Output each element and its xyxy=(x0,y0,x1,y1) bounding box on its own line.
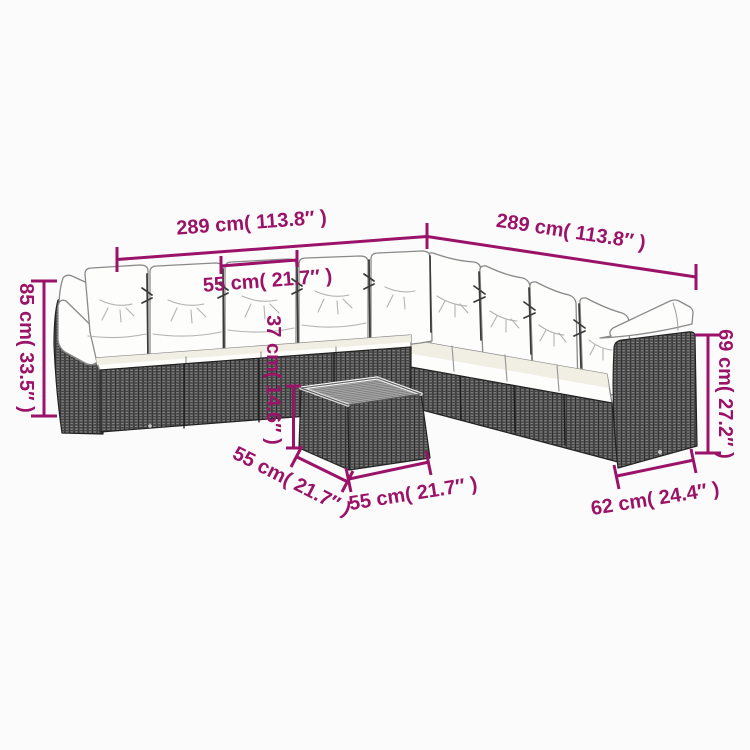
svg-text:69 cm( 27.2″ ): 69 cm( 27.2″ ) xyxy=(714,329,736,459)
svg-text:37 cm( 14.6″ ): 37 cm( 14.6″ ) xyxy=(262,315,284,445)
svg-text:85 cm( 33.5″ ): 85 cm( 33.5″ ) xyxy=(15,283,37,413)
